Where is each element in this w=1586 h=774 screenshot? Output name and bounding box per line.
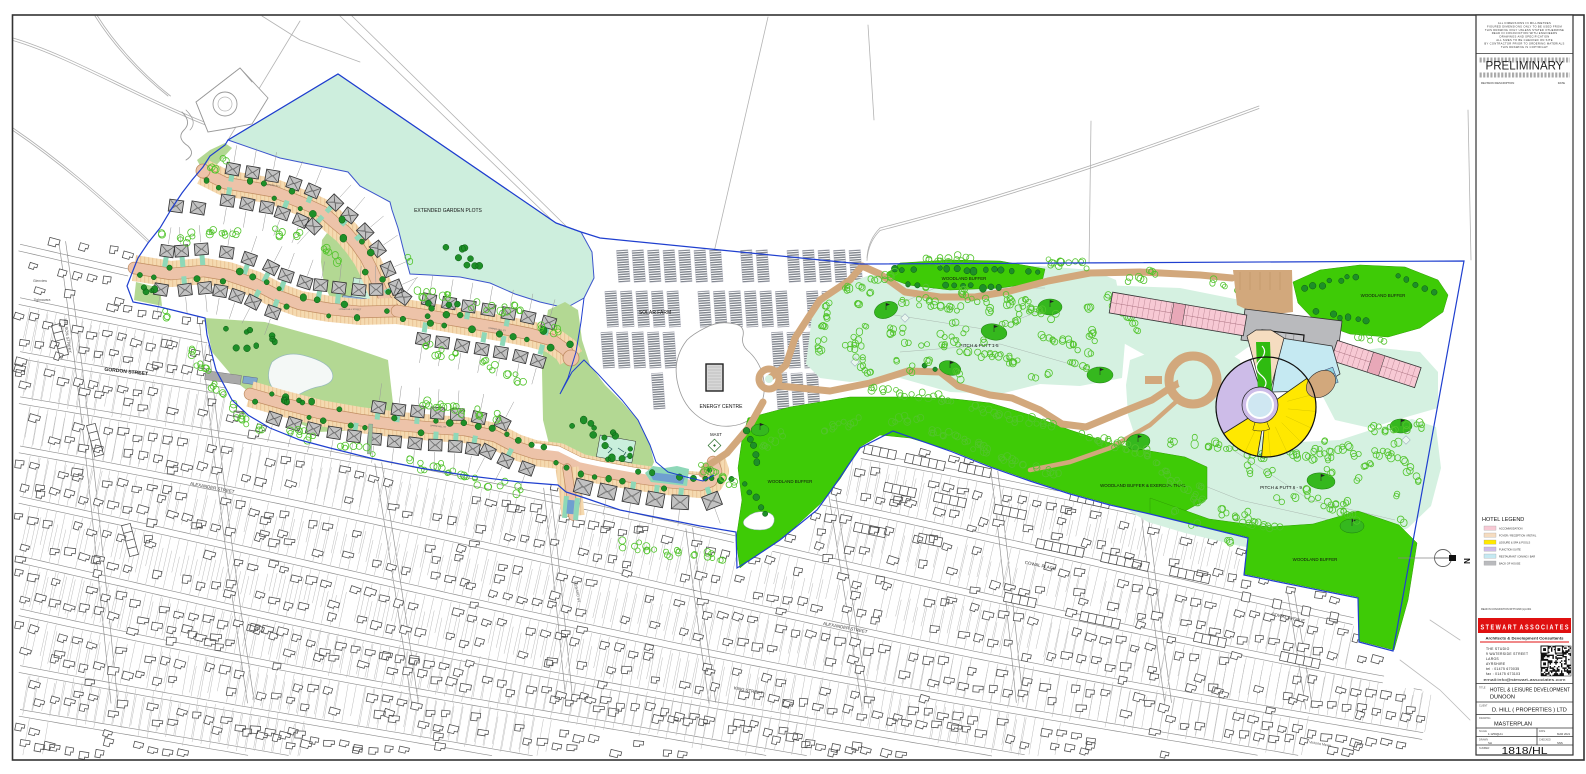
svg-text:ACCOMMODATION: ACCOMMODATION: [1499, 527, 1523, 531]
svg-text:ENERGY CENTRE: ENERGY CENTRE: [700, 404, 744, 410]
svg-text:DATE: DATE: [1558, 81, 1565, 85]
svg-text:SCALE: SCALE: [1479, 730, 1487, 733]
svg-text:WOODLAND BUFFER: WOODLAND BUFFER: [768, 479, 813, 484]
svg-text:SNS: SNS: [1557, 741, 1563, 745]
svg-text:BACK OF HOUSE: BACK OF HOUSE: [1499, 562, 1521, 566]
svg-text:DUNOON: DUNOON: [1490, 695, 1515, 701]
svg-text:9 WATERSIDE STREET: 9 WATERSIDE STREET: [1486, 652, 1528, 656]
svg-text:PITCH & PUTT 6 - 9: PITCH & PUTT 6 - 9: [1260, 485, 1302, 490]
svg-text:S T E W A R T A S S O C I A T: S T E W A R T A S S O C I A T E S: [1481, 625, 1569, 632]
svg-text:Tighnavara: Tighnavara: [34, 298, 51, 302]
svg-text:HOTEL & LEISURE DEVELOPMENT: HOTEL & LEISURE DEVELOPMENT: [1490, 688, 1570, 694]
svg-text:SH: SH: [1488, 741, 1492, 745]
svg-text:THE STUDIO: THE STUDIO: [1486, 647, 1510, 651]
svg-text:CLIENT: CLIENT: [1479, 705, 1488, 708]
svg-text:FOYER / RECEPTION / RETAIL: FOYER / RECEPTION / RETAIL: [1499, 534, 1537, 538]
svg-text:MASTERPLAN: MASTERPLAN: [1494, 722, 1532, 728]
svg-text:MAST: MAST: [710, 432, 722, 437]
svg-text:NUMBER: NUMBER: [1479, 747, 1490, 750]
svg-text:WOODLAND BUFFER & EXERCISE TRA: WOODLAND BUFFER & EXERCISE TRAIL: [1100, 483, 1186, 488]
svg-text:DATE: DATE: [1539, 730, 1546, 733]
svg-text:fax : 01475 673103: fax : 01475 673103: [1486, 672, 1520, 676]
svg-text:Glenview: Glenview: [33, 279, 47, 283]
svg-text:DRAWINGS AND SPECIFICATION: DRAWINGS AND SPECIFICATION: [1500, 35, 1550, 39]
svg-text:LOWER HILL STREET: LOWER HILL STREET: [339, 309, 362, 311]
svg-text:MAR 2021: MAR 2021: [1557, 732, 1571, 736]
svg-text:WOODLAND BUFFER: WOODLAND BUFFER: [942, 276, 987, 281]
svg-text:ALL DIMENSIONS IN MILLIMETRES: ALL DIMENSIONS IN MILLIMETRES: [1498, 21, 1551, 25]
svg-text:DRAWING: DRAWING: [1479, 717, 1491, 720]
svg-text:FIGURED DIMENSIONS ONLY TO BE: FIGURED DIMENSIONS ONLY TO BE USED FROM: [1487, 24, 1562, 28]
svg-text:FUNCTION SUITE: FUNCTION SUITE: [1499, 548, 1521, 552]
svg-text:WOODLAND BUFFER: WOODLAND BUFFER: [1293, 557, 1338, 562]
svg-text:1818/HL: 1818/HL: [1502, 746, 1549, 757]
svg-text:1:1250@A1: 1:1250@A1: [1488, 732, 1503, 736]
svg-text:READ IN CONJUNCTION WITH 1818: READ IN CONJUNCTION WITH 1818 (L)A 001: [1481, 608, 1532, 611]
svg-text:HOTEL LEGEND: HOTEL LEGEND: [1482, 517, 1524, 523]
svg-text:EXTENDED GARDEN PLOTS: EXTENDED GARDEN PLOTS: [414, 208, 482, 214]
svg-text:REVISION DESCRIPTION: REVISION DESCRIPTION: [1481, 81, 1514, 85]
svg-text:TITLE: TITLE: [1479, 687, 1486, 690]
svg-text:AYRSHIRE: AYRSHIRE: [1486, 662, 1506, 666]
svg-text:LARGS: LARGS: [1486, 657, 1499, 661]
svg-text:N: N: [1462, 558, 1471, 564]
svg-text:CHECKED: CHECKED: [1539, 739, 1551, 742]
svg-text:THIS DRAWING ONLY UNLESS STATE: THIS DRAWING ONLY UNLESS STATED OTHERWIS…: [1485, 28, 1564, 32]
svg-text:Architects & Development Consu: Architects & Development Consultants: [1486, 637, 1564, 641]
svg-text:READ IN CONJUNCTION WITH ENGIN: READ IN CONJUNCTION WITH ENGINEERS: [1492, 31, 1558, 35]
svg-text:PRELIMINARY: PRELIMINARY: [1486, 61, 1564, 73]
svg-text:RESTAURANT / DINING / BAR: RESTAURANT / DINING / BAR: [1499, 555, 1535, 559]
svg-text:tel : 01475 670035: tel : 01475 670035: [1486, 667, 1520, 671]
svg-text:WOODLAND BUFFER: WOODLAND BUFFER: [1361, 293, 1406, 298]
svg-text:LEISURE & SPA & POOLS: LEISURE & SPA & POOLS: [1499, 541, 1531, 545]
svg-text:email:info@stewart-associates.: email:info@stewart-associates.com: [1484, 678, 1566, 682]
svg-text:BY CONTRACTOR PRIOR TO ORDERIN: BY CONTRACTOR PRIOR TO ORDERING MATERIAL…: [1484, 41, 1564, 45]
svg-text:ALL SIZES TO BE CHECKED ON SIT: ALL SIZES TO BE CHECKED ON SITE: [1496, 38, 1553, 42]
svg-text:D. HILL ( PROPERTIES ) LTD: D. HILL ( PROPERTIES ) LTD: [1492, 708, 1567, 714]
svg-text:PITCH & PUTT 1-5: PITCH & PUTT 1-5: [959, 343, 999, 348]
svg-text:THIS DRAWING IS COPYRIGHT: THIS DRAWING IS COPYRIGHT: [1501, 45, 1548, 49]
svg-text:SOLAR FARM: SOLAR FARM: [639, 310, 671, 316]
svg-text:DRAWN: DRAWN: [1479, 739, 1488, 742]
